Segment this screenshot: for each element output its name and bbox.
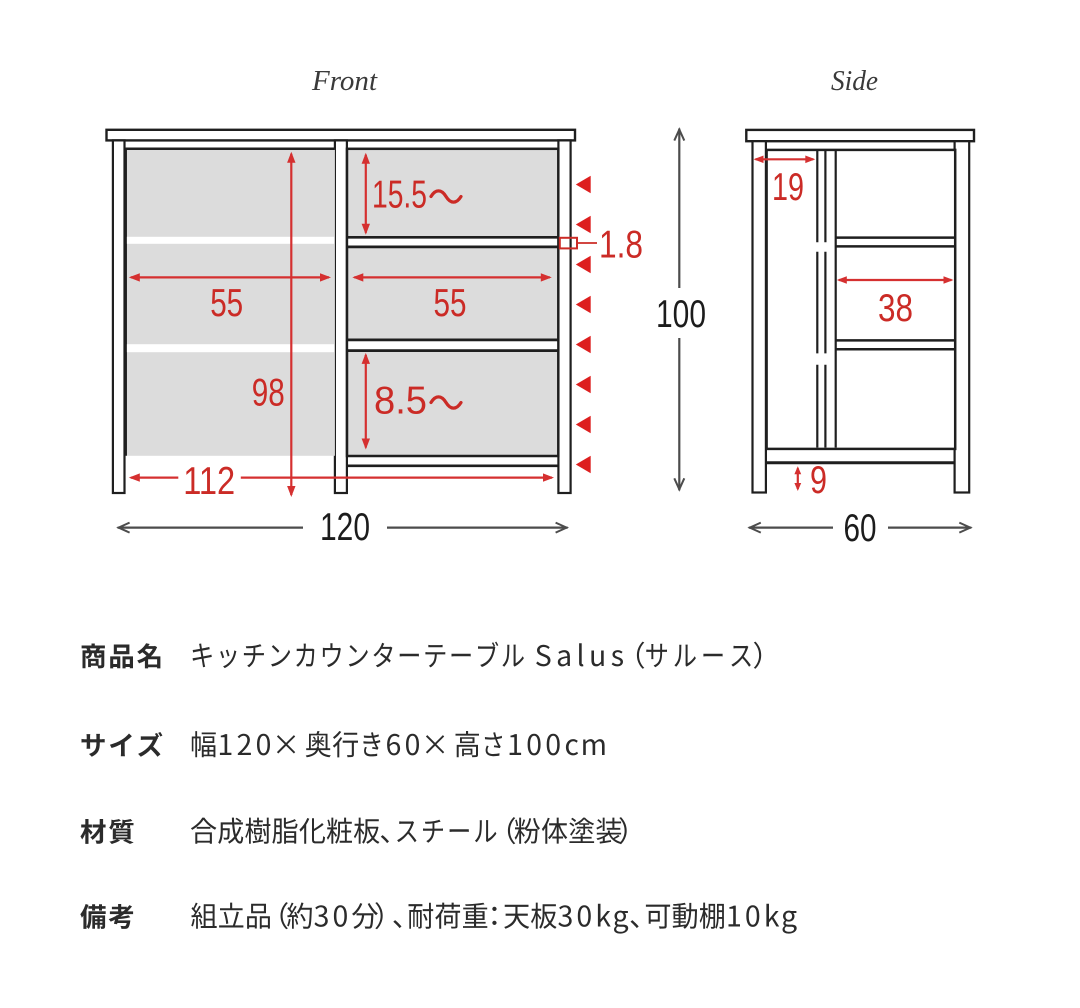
svg-text:1.8: 1.8 bbox=[599, 224, 643, 267]
svg-text:112: 112 bbox=[183, 460, 235, 503]
svg-text:15.5: 15.5 bbox=[372, 174, 427, 217]
svg-text:55: 55 bbox=[210, 282, 243, 325]
svg-text:Side: Side bbox=[831, 65, 878, 97]
svg-text:8.5: 8.5 bbox=[374, 380, 427, 423]
svg-text:98: 98 bbox=[252, 372, 285, 415]
svg-text:19: 19 bbox=[772, 166, 804, 209]
svg-text:9: 9 bbox=[810, 459, 827, 502]
svg-text:55: 55 bbox=[434, 282, 467, 325]
svg-text:60: 60 bbox=[844, 507, 877, 550]
svg-text:120: 120 bbox=[320, 506, 370, 549]
svg-text:100: 100 bbox=[656, 293, 706, 336]
svg-text:38: 38 bbox=[878, 287, 913, 330]
svg-text:Front: Front bbox=[311, 65, 378, 97]
